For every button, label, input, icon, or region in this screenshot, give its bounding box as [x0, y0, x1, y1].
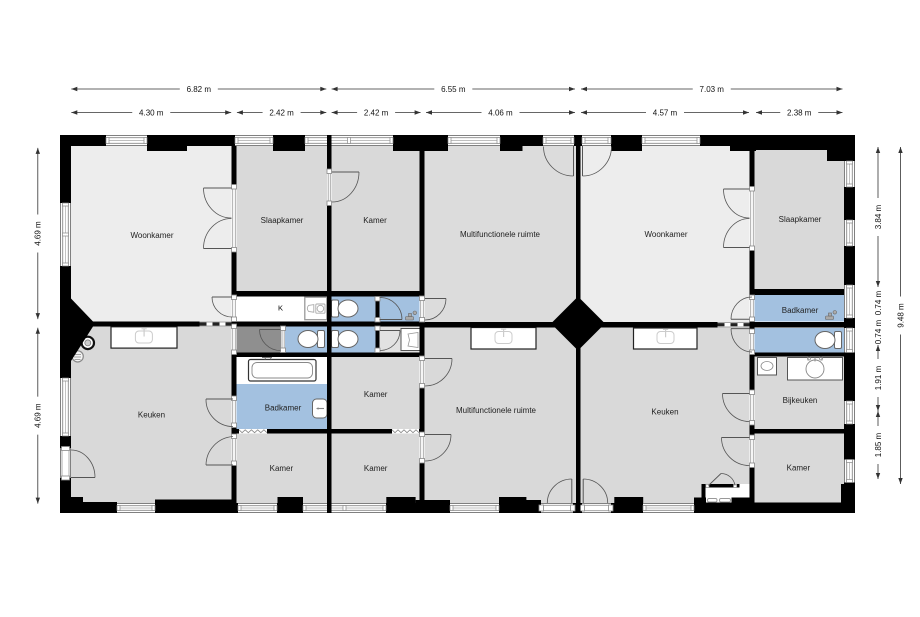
svg-text:7.03 m: 7.03 m	[700, 85, 725, 94]
svg-text:0.74 m: 0.74 m	[874, 319, 883, 344]
svg-text:4.57 m: 4.57 m	[653, 108, 678, 117]
svg-text:4.69 m: 4.69 m	[34, 221, 43, 246]
svg-text:Keuken: Keuken	[651, 408, 678, 417]
svg-text:Keuken: Keuken	[138, 411, 165, 420]
svg-text:Kamer: Kamer	[364, 390, 388, 399]
svg-text:Kamer: Kamer	[364, 464, 388, 473]
svg-text:0.74 m: 0.74 m	[874, 290, 883, 315]
svg-text:4.30 m: 4.30 m	[139, 108, 164, 117]
svg-text:Slaapkamer: Slaapkamer	[261, 216, 304, 225]
svg-text:6.82 m: 6.82 m	[187, 85, 212, 94]
svg-text:1.91 m: 1.91 m	[874, 365, 883, 390]
svg-text:K: K	[278, 304, 283, 313]
svg-text:4.69 m: 4.69 m	[34, 403, 43, 428]
svg-text:Woonkamer: Woonkamer	[131, 231, 174, 240]
svg-text:Multifunctionele ruimte: Multifunctionele ruimte	[456, 406, 537, 415]
svg-text:2.42 m: 2.42 m	[269, 108, 294, 117]
svg-text:Slaapkamer: Slaapkamer	[779, 215, 822, 224]
svg-text:9.48 m: 9.48 m	[896, 303, 905, 328]
svg-text:4.06 m: 4.06 m	[488, 108, 513, 117]
svg-text:Bijkeuken: Bijkeuken	[783, 396, 818, 405]
svg-text:6.55 m: 6.55 m	[441, 85, 466, 94]
svg-text:Badkamer: Badkamer	[782, 306, 819, 315]
svg-text:2.42 m: 2.42 m	[364, 108, 389, 117]
svg-text:Multifunctionele ruimte: Multifunctionele ruimte	[460, 230, 541, 239]
svg-text:Woonkamer: Woonkamer	[645, 230, 688, 239]
svg-text:Kamer: Kamer	[363, 216, 387, 225]
svg-text:Badkamer: Badkamer	[265, 404, 302, 413]
svg-text:1.85 m: 1.85 m	[874, 432, 883, 457]
svg-text:Kamer: Kamer	[787, 464, 811, 473]
svg-text:3.84 m: 3.84 m	[874, 204, 883, 229]
svg-text:2.38 m: 2.38 m	[787, 108, 812, 117]
svg-text:Kamer: Kamer	[270, 464, 294, 473]
